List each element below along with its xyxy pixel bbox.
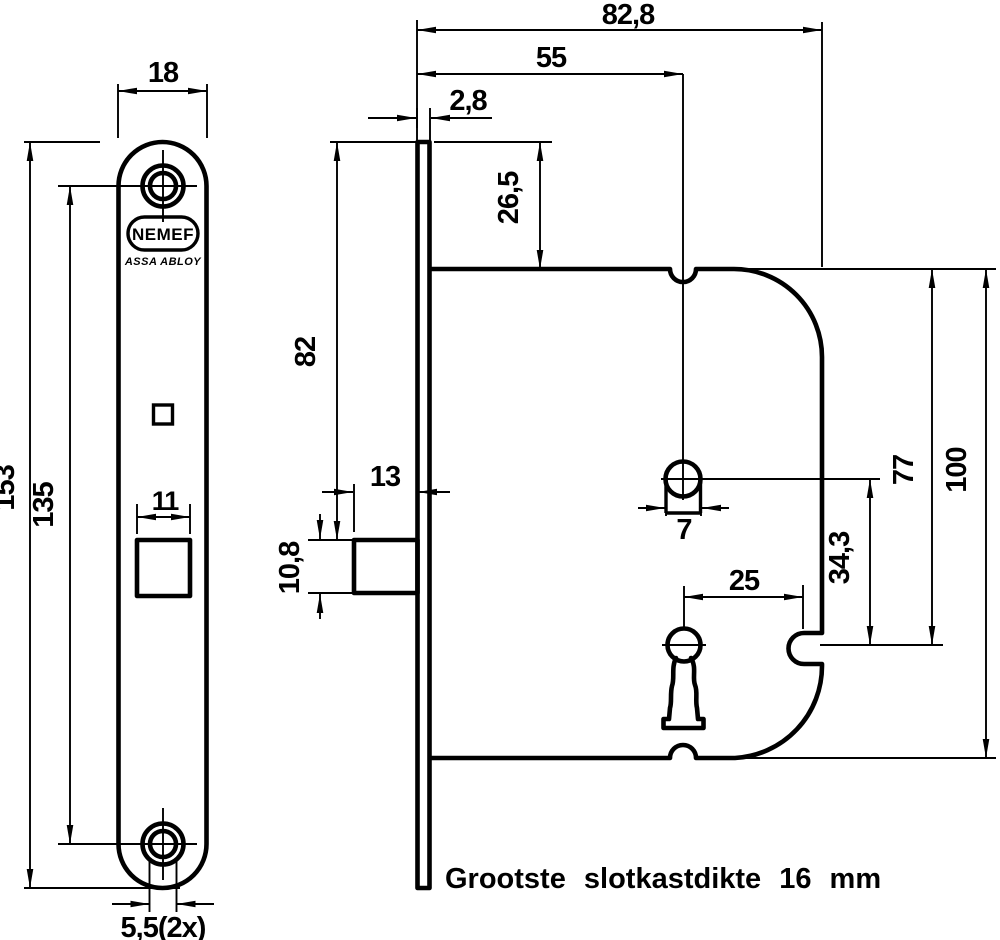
- dim-follower-to-keyhole-label: 34,3: [824, 531, 856, 584]
- dim-top-offset: 26,5: [434, 142, 552, 269]
- lock-case-outline: [430, 269, 822, 758]
- dim-bolt-height-label: 10,8: [274, 541, 306, 594]
- dim-faceplate-thickness-label: 2,8: [449, 85, 487, 117]
- small-square-cutout: [154, 405, 173, 424]
- dim-keyhole-from-top-label: 77: [888, 455, 920, 485]
- front-view: NEMEF ASSA ABLOY 18 153: [0, 57, 214, 940]
- dim-screw-diameter-label: 5,5(2x): [121, 912, 206, 940]
- dim-plate-height-label: 153: [0, 464, 21, 510]
- logo-subbrand-text: ASSA ABLOY: [124, 256, 202, 268]
- dim-backset: 55: [417, 42, 683, 74]
- faceplate-side: [418, 142, 430, 888]
- dim-screw-spacing-label: 135: [28, 481, 60, 527]
- dim-follower-hole: 7: [638, 492, 729, 546]
- side-view: 82,8 55 2,8 26,5 82: [274, 0, 996, 895]
- technical-drawing-page: NEMEF ASSA ABLOY 18 153: [0, 0, 1000, 940]
- dim-bolt-height: 10,8: [274, 514, 354, 619]
- dim-plate-width-label: 18: [148, 57, 179, 89]
- dim-case-height-label: 100: [941, 447, 973, 492]
- dim-keyhole-from-top: 77: [888, 269, 932, 645]
- bolt-opening-front: [137, 540, 190, 596]
- lock-technical-drawing: NEMEF ASSA ABLOY 18 153: [0, 0, 1000, 940]
- logo-brand-text: NEMEF: [132, 225, 194, 244]
- dim-case-height: 100: [941, 269, 986, 758]
- dim-faceplate-thickness: 2,8: [368, 85, 492, 142]
- dim-overall-depth: 82,8: [417, 0, 822, 267]
- dim-follower-to-keyhole: 34,3: [824, 479, 870, 645]
- follower-hole: [661, 74, 880, 513]
- dim-plate-width: 18: [118, 57, 207, 138]
- dim-keyhole-to-fixing: 25: [684, 565, 803, 629]
- dim-bolt-width-label: 11: [152, 486, 180, 516]
- latch-bolt-side: [354, 540, 418, 593]
- dim-screw-spacing: 135: [28, 186, 70, 844]
- nemef-logo: NEMEF ASSA ABLOY: [124, 217, 202, 268]
- dim-bolt-width: 11: [137, 486, 190, 534]
- dim-top-offset-label: 26,5: [493, 171, 525, 224]
- dim-bolt-protrusion-label: 13: [370, 461, 401, 493]
- dim-overall-depth-label: 82,8: [602, 0, 655, 31]
- dim-backset-label: 55: [536, 42, 567, 74]
- dim-plate-top-to-bolt-label: 82: [290, 337, 322, 367]
- dim-follower-hole-label: 7: [676, 514, 691, 546]
- dim-keyhole-to-fixing-label: 25: [729, 565, 760, 597]
- note-text: Grootste slotkastdikte 16 mm: [445, 863, 881, 895]
